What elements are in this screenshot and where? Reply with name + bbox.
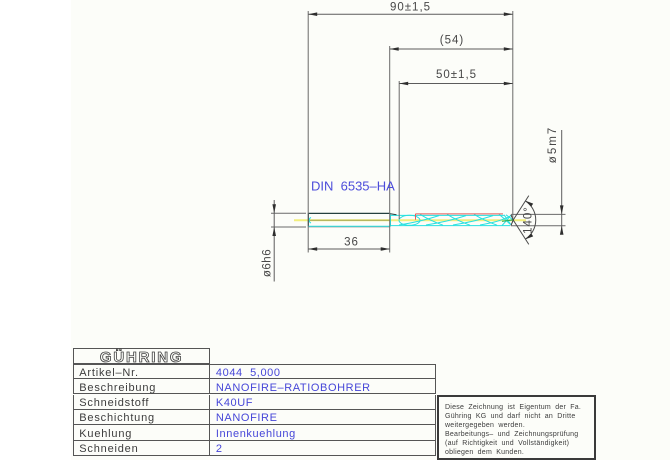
svg-text:ø5m7: ø5m7 — [547, 126, 559, 163]
svg-text:ø6h6: ø6h6 — [262, 249, 274, 277]
svg-text:50±1,5: 50±1,5 — [436, 69, 477, 81]
svg-text:90±1,5: 90±1,5 — [390, 2, 431, 14]
svg-text:(54): (54) — [440, 35, 464, 47]
svg-text:140°: 140° — [523, 206, 535, 234]
svg-text:36: 36 — [344, 237, 359, 249]
svg-text:DIN 6535–HA: DIN 6535–HA — [311, 179, 395, 194]
